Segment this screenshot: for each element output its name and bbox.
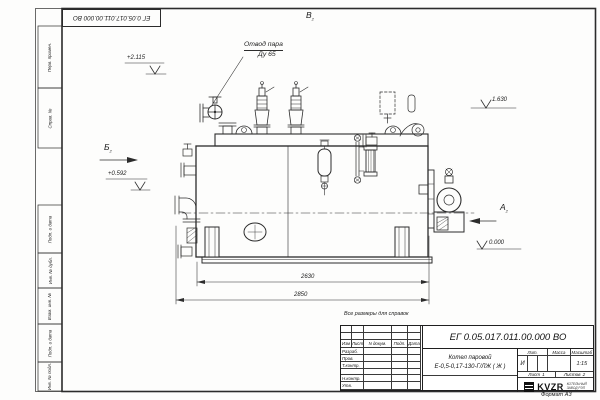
callout-leader [212,57,243,105]
manhole [244,223,266,241]
margin-cell-perv-primen: Перв. примен. [38,26,62,88]
boiler-body [182,134,474,257]
kvzr-logo-sub: КОТЕЛЬНЫЙ ЗАВОД РЭП [567,383,587,391]
level-mid: +0.592 [108,171,127,177]
water-gauge-1 [318,140,331,195]
burner [428,169,464,233]
right-nozzle [419,185,428,194]
format-label: Формат А3 [541,393,572,399]
role-prov: Пров. [341,355,364,362]
kvzr-logo-text: KVZR [537,382,564,392]
flipped-designation-box: ЕГ 0.05.017.011.00.000 ВО [62,9,161,27]
product-name-cell: Котел паровой Е-0,5-0,17-130-Г/ЛЖ ( Ж ) [423,349,518,392]
callout-steam-outlet: Отвод пара [244,42,283,51]
level-right: 1.630 [492,97,507,103]
sheet-cell: Лист 1 [518,372,556,377]
margin-cell-sprav-no: Справ. № [38,88,62,148]
view-label-v: В2 [306,11,314,22]
safety-valve-1 [254,82,274,135]
title-block-right: Лит. Масса Масштаб И 1:15 Лист 1 Листов … [518,349,593,390]
hdr-data: Дата [408,340,421,348]
view-label-a: А2 [500,203,508,214]
title-block: Изм Лист N докум. Подп. Дата Разраб. Про… [340,325,594,391]
hdr-massa: Масса [548,349,570,356]
scale-value: 1:15 [571,356,593,371]
role-utv: Утв. [341,382,364,390]
hdr-lit: Лит. [518,349,548,356]
level-zero: 0.000 [489,240,504,246]
product-name-line1: Котел паровой [423,354,517,363]
safety-valve-2 [288,82,308,135]
lit-cells: И [518,356,548,371]
dim-2630: 2630 [301,274,314,280]
view-label-b: Б2 [104,143,112,154]
view-arrows [100,157,496,224]
reference-note: Все размеры для справок [344,312,409,317]
lit-value: И [518,356,528,371]
hdr-doc: N докум. [364,340,392,348]
role-nkontr: Н.контр. [341,375,364,382]
margin-cell-vzam-inv: Взам. инв. № [38,288,62,324]
dim-2850: 2850 [294,292,307,298]
steam-outlet-valve [200,97,236,134]
hdr-podp: Подп. [392,340,408,348]
drawing-sheet: ЕГ 0.05.017.011.00.000 ВО Перв. примен. … [0,0,600,400]
level-top: +2.115 [127,55,145,61]
kvzr-logo-icon [524,382,534,392]
margin-cell-podp-data-2: Подп. и дата [38,324,62,362]
callout-dn65: Ду 65 [258,52,276,59]
title-block-left-table: Изм Лист N докум. Подп. Дата Разраб. Про… [341,326,423,390]
hdr-masshtab: Масштаб [571,349,593,356]
sheets-cell: Листов 2 [556,372,593,377]
document-designation: ЕГ 0.05.017.011.00.000 ВО [423,326,593,349]
role-tkontr: Т.контр. [341,362,364,369]
massa-value [548,356,570,371]
deck-fitting [363,133,377,147]
level-marks [106,63,521,249]
product-name-line2: Е-0,5-0,17-130-Г/ЛЖ ( Ж ) [423,363,517,372]
margin-cell-podp-data-1: Подп. и дата [38,205,62,253]
hdr-list: Лист [352,340,364,348]
flipped-designation-text: ЕГ 0.05.017.011.00.000 ВО [73,14,150,21]
margin-cell-inv-podl: Инв. № подл. [38,362,62,391]
hdr-izm: Изм [341,340,352,348]
margin-cell-inv-dubl: Инв. № дубл. [38,253,62,288]
role-razrab: Разраб. [341,348,364,355]
